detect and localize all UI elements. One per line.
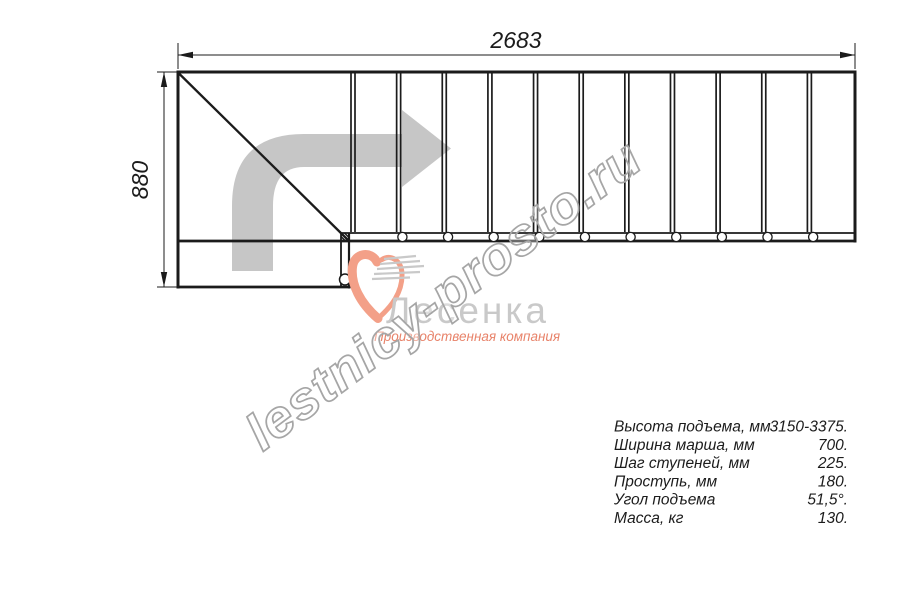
spec-row-label: Масса, кг [614,510,684,527]
dimension-top-value: 2683 [489,27,541,53]
spec-row-value: 225. [817,455,848,472]
dimension-left: 880 [127,72,177,287]
arrowhead-up-icon [161,72,167,87]
fan-line [372,278,410,280]
watermark-text: lestnicy-prosto.ru [235,129,652,462]
arrowhead-down-icon [161,272,167,287]
bolt-hole [809,232,818,241]
spec-row-value: 130. [818,510,848,527]
arrowhead-right-icon [840,52,855,58]
spec-row-value: 700. [818,437,848,454]
spec-row-label: Шаг ступеней, мм [614,455,750,472]
fan-line [374,272,420,274]
stair-plan-page: 2683 880 Лесенка Производственная компан… [0,0,900,600]
bolt-hole [398,232,407,241]
bolt-hole [626,232,635,241]
dimension-top: 2683 [178,27,855,69]
logo-swoosh-icon [352,255,378,319]
bolt-hole [443,232,452,241]
bolt-hole [763,232,772,241]
arrowhead-left-icon [178,52,193,58]
stair-plan-drawing: 2683 880 Лесенка Производственная компан… [0,0,900,600]
watermark: lestnicy-prosto.ru [235,129,652,462]
bolt-hole [580,232,589,241]
spec-row-value: 3150-3375. [770,419,848,436]
bolt-hole [717,232,726,241]
spec-row-label: Угол подъема [613,492,716,509]
spec-table: Высота подъема, мм3150-3375.Ширина марша… [613,419,848,528]
fan-line [380,261,420,264]
fan-line [377,266,424,269]
dimension-left-value: 880 [127,161,153,200]
bolt-hole [672,232,681,241]
spec-row-value: 51,5°. [807,492,848,509]
spec-row-label: Ширина марша, мм [614,437,755,454]
spec-row-label: Проступь, мм [614,473,717,490]
spec-row-label: Высота подъема, мм [614,419,771,436]
spec-row-value: 180. [818,473,848,490]
